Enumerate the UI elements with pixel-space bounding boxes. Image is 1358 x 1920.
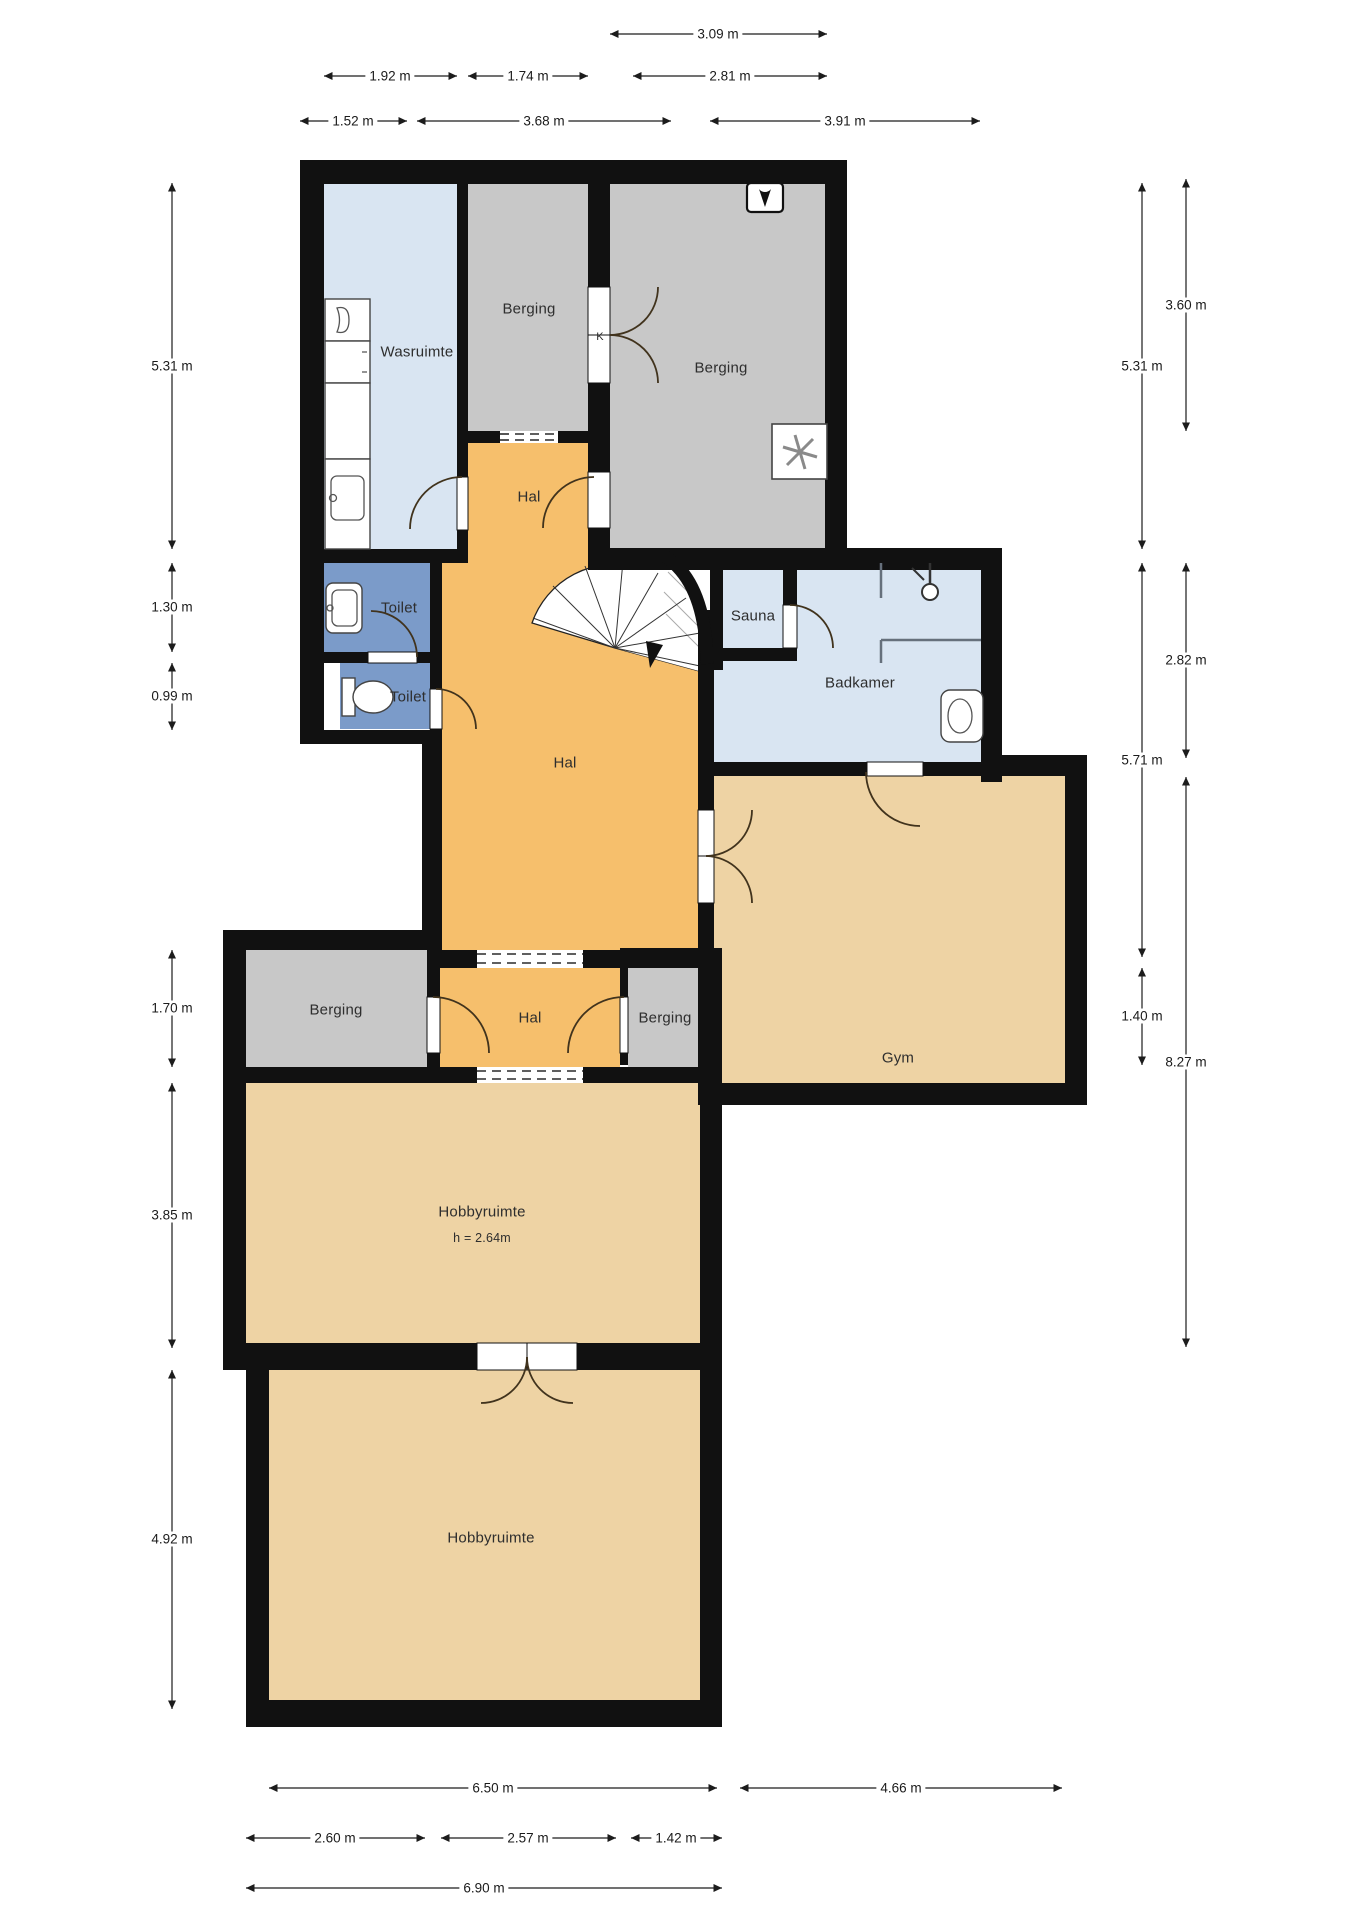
- dim-left-1-70: 1.70 m: [147, 1001, 196, 1016]
- label-wasruimte: Wasruimte: [381, 344, 454, 361]
- label-hobbyruimte-south: Hobbyruimte: [447, 1530, 534, 1547]
- washing-machine-icon-2: [325, 341, 370, 383]
- dim-right-3-60: 3.60 m: [1161, 298, 1210, 313]
- label-berging-north-right: Berging: [694, 360, 747, 377]
- dim-right-2-82: 2.82 m: [1161, 653, 1210, 668]
- dim-bottom-6-50: 6.50 m: [468, 1781, 517, 1796]
- toilet-sink-icon: [326, 583, 362, 633]
- label-gym: Gym: [882, 1050, 914, 1067]
- label-hobbyruimte: Hobbyruimte: [438, 1204, 525, 1221]
- dim-top-2-81: 2.81 m: [705, 69, 754, 84]
- mechanical-ventilation-icon: [772, 424, 827, 479]
- label-berging-north-mid: Berging: [502, 301, 555, 318]
- open-passage-berging-hal: [500, 431, 558, 443]
- dim-bottom-2-60: 2.60 m: [310, 1831, 359, 1846]
- meter-icon: [747, 183, 783, 212]
- dim-bottom-4-66: 4.66 m: [876, 1781, 925, 1796]
- dim-top-1-92: 1.92 m: [365, 69, 414, 84]
- toilet-duct: [324, 663, 340, 729]
- floor-plan-drawing: [0, 0, 1358, 1920]
- open-passage-hal-small-north: [477, 950, 583, 968]
- bathroom-sink-icon: [941, 690, 983, 742]
- dim-bottom-6-90: 6.90 m: [459, 1881, 508, 1896]
- washing-machine-icon: [325, 299, 370, 341]
- sink-icon: [325, 459, 370, 549]
- dim-right-8-27: 8.27 m: [1161, 1055, 1210, 1070]
- room-gym: [714, 776, 1065, 1083]
- open-passage-hal-small-south: [477, 1067, 583, 1083]
- dim-left-3-85: 3.85 m: [147, 1208, 196, 1223]
- label-badkamer: Badkamer: [825, 675, 895, 692]
- label-hal-small: Hal: [518, 1010, 541, 1027]
- dim-left-5-31: 5.31 m: [147, 359, 196, 374]
- label-hal-main: Hal: [553, 755, 576, 772]
- dim-right-5-31: 5.31 m: [1117, 359, 1166, 374]
- label-closet-k: K: [596, 331, 604, 343]
- dim-top-1-74: 1.74 m: [503, 69, 552, 84]
- dim-top-3-09: 3.09 m: [693, 27, 742, 42]
- label-sauna: Sauna: [731, 608, 775, 625]
- dim-top-3-68: 3.68 m: [519, 114, 568, 129]
- dim-bottom-2-57: 2.57 m: [503, 1831, 552, 1846]
- dim-right-1-40: 1.40 m: [1117, 1009, 1166, 1024]
- label-hobbyruimte-height: h = 2.64m: [453, 1231, 511, 1245]
- dim-top-1-52: 1.52 m: [328, 114, 377, 129]
- label-berging-mid-lower: Berging: [638, 1010, 691, 1027]
- label-hal-upper: Hal: [517, 489, 540, 506]
- dim-bottom-1-42: 1.42 m: [651, 1831, 700, 1846]
- counter: [325, 383, 370, 459]
- floor-plan-page: Wasruimte Berging Berging K Hal Toilet T…: [0, 0, 1358, 1920]
- dim-left-1-30: 1.30 m: [147, 600, 196, 615]
- toilet-icon: [342, 678, 393, 716]
- dim-left-0-99: 0.99 m: [147, 689, 196, 704]
- label-toilet-lower: Toilet: [390, 689, 426, 706]
- label-berging-west: Berging: [309, 1002, 362, 1019]
- dim-left-4-92: 4.92 m: [147, 1532, 196, 1547]
- dim-right-5-71: 5.71 m: [1117, 753, 1166, 768]
- label-toilet-upper: Toilet: [381, 600, 417, 617]
- dim-top-3-91: 3.91 m: [820, 114, 869, 129]
